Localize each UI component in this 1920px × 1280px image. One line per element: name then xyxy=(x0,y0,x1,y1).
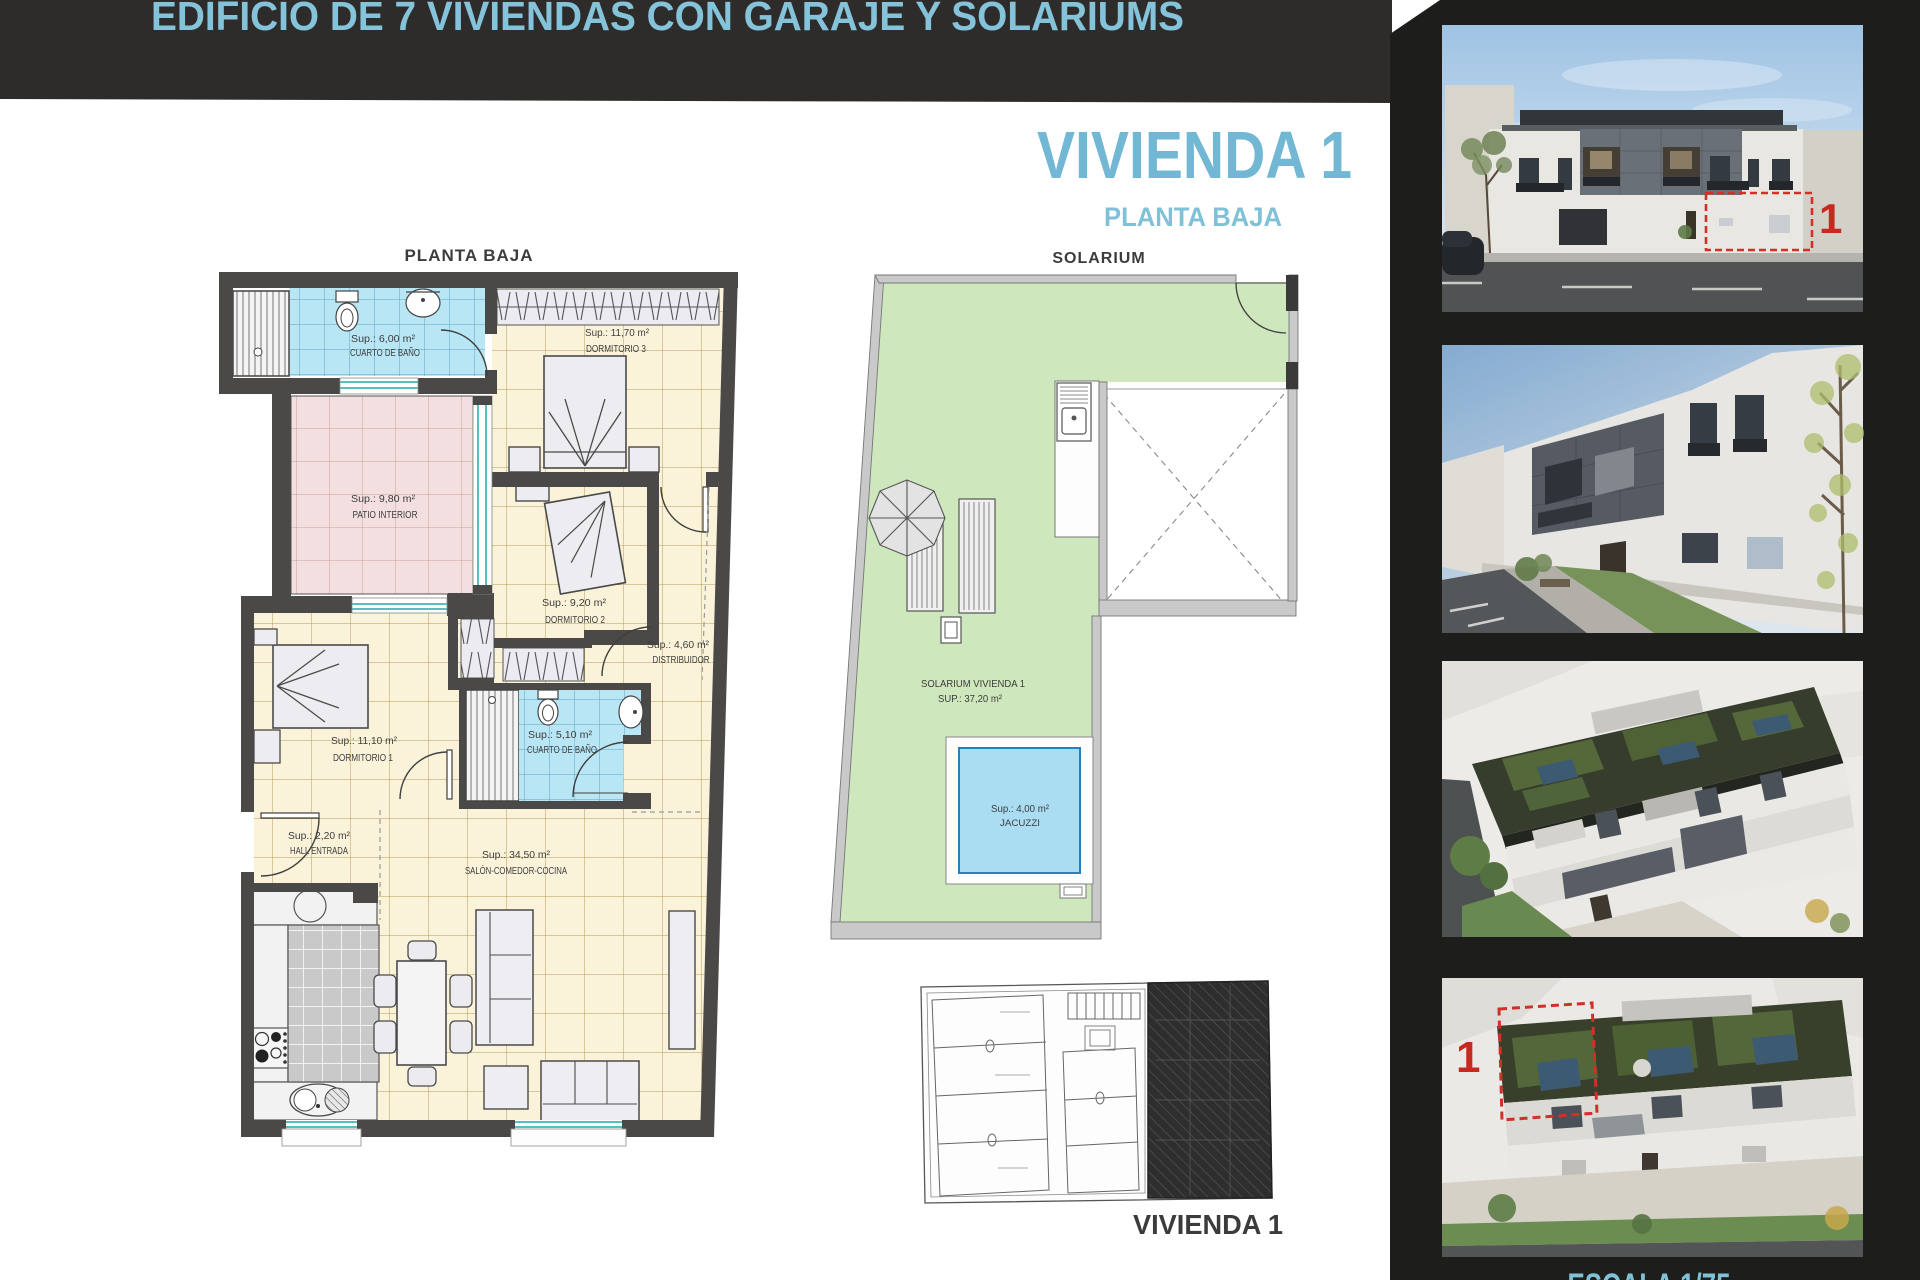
svg-text:Sup.: 4,00 m²: Sup.: 4,00 m² xyxy=(991,804,1050,815)
svg-text:DORMITORIO 2: DORMITORIO 2 xyxy=(545,615,605,626)
svg-text:Sup.: 9,20 m²: Sup.: 9,20 m² xyxy=(542,598,607,609)
svg-text:EDIFICIO DE 7 VIVIENDAS CON GA: EDIFICIO DE 7 VIVIENDAS CON GARAJE Y SOL… xyxy=(151,0,1184,39)
svg-text:PATIO INTERIOR: PATIO INTERIOR xyxy=(353,510,418,521)
svg-text:CUARTO DE BAÑO: CUARTO DE BAÑO xyxy=(527,743,597,756)
svg-text:Sup.: 5,10 m²: Sup.: 5,10 m² xyxy=(528,730,593,741)
svg-text:JACUZZI: JACUZZI xyxy=(1000,818,1040,829)
svg-text:SOLARIUM VIVIENDA 1: SOLARIUM VIVIENDA 1 xyxy=(921,679,1025,690)
svg-text:VIVIENDA 1: VIVIENDA 1 xyxy=(1037,118,1352,193)
svg-text:DORMITORIO 3: DORMITORIO 3 xyxy=(586,344,646,355)
svg-text:Sup.: 4,60 m²: Sup.: 4,60 m² xyxy=(647,640,710,651)
svg-text:SOLARIUM: SOLARIUM xyxy=(1052,250,1145,267)
svg-text:DORMITORIO 1: DORMITORIO 1 xyxy=(333,753,393,764)
svg-text:Sup.: 11,70 m²: Sup.: 11,70 m² xyxy=(585,328,650,339)
svg-text:HALL ENTRADA: HALL ENTRADA xyxy=(290,846,348,857)
svg-text:1: 1 xyxy=(1456,1033,1480,1082)
svg-text:ESCALA 1/75: ESCALA 1/75 xyxy=(1568,1267,1731,1280)
svg-text:PLANTA BAJA: PLANTA BAJA xyxy=(404,246,533,265)
svg-text:SALÓN-COMEDOR-COCINA: SALÓN-COMEDOR-COCINA xyxy=(465,864,567,877)
svg-text:1: 1 xyxy=(1819,195,1842,242)
svg-text:Sup.: 34,50 m²: Sup.: 34,50 m² xyxy=(482,850,551,861)
svg-text:PLANTA BAJA: PLANTA BAJA xyxy=(1104,202,1282,232)
svg-text:Sup.: 6,00 m²: Sup.: 6,00 m² xyxy=(351,334,416,345)
svg-text:SUP.: 37,20 m²: SUP.: 37,20 m² xyxy=(938,694,1003,705)
svg-text:Sup.: 9,80 m²: Sup.: 9,80 m² xyxy=(351,494,416,505)
svg-text:VIVIENDA 1: VIVIENDA 1 xyxy=(1133,1209,1283,1240)
svg-text:CUARTO DE BAÑO: CUARTO DE BAÑO xyxy=(350,346,420,359)
svg-text:Sup.: 11,10 m²: Sup.: 11,10 m² xyxy=(331,736,398,747)
svg-text:DISTRIBUIDOR: DISTRIBUIDOR xyxy=(653,655,710,666)
svg-text:Sup.: 2,20 m²: Sup.: 2,20 m² xyxy=(288,831,351,842)
